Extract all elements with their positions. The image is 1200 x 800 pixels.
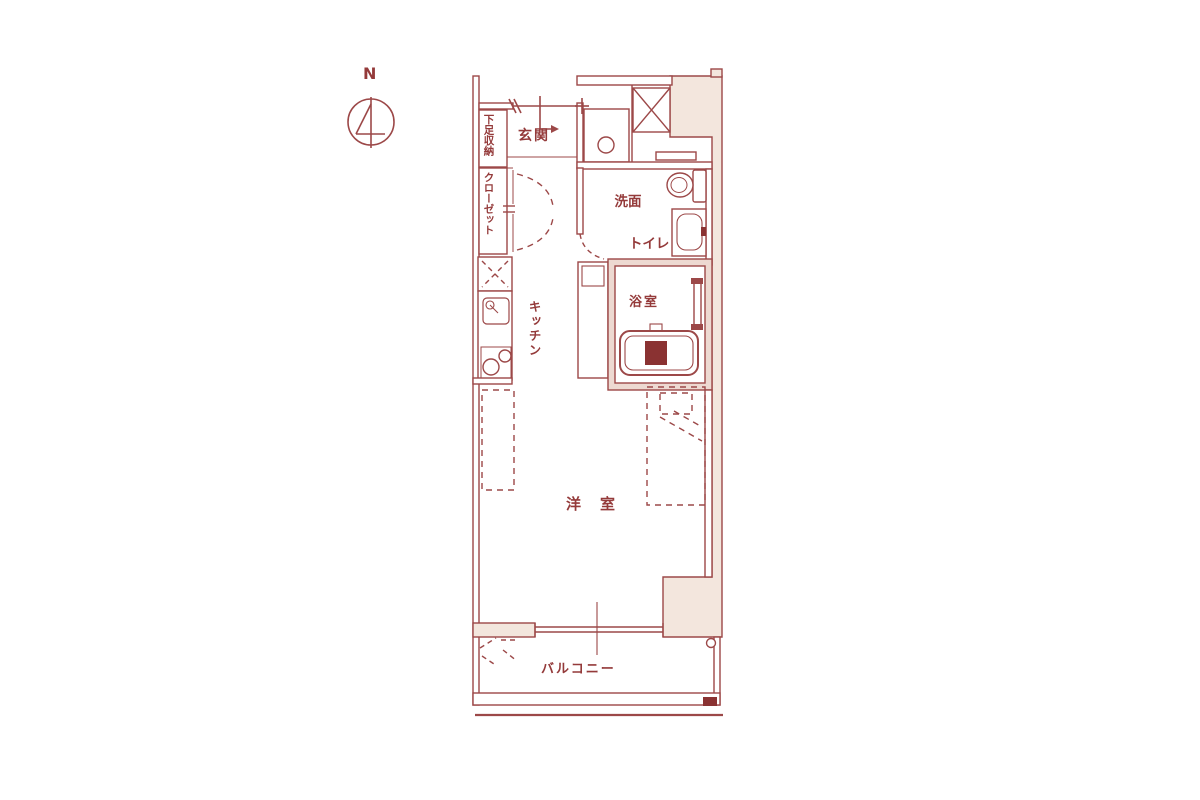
room-label-closet: クローゼット bbox=[483, 172, 494, 235]
bathtub bbox=[620, 324, 698, 375]
toilet bbox=[667, 170, 706, 202]
refrigerator-space bbox=[478, 257, 512, 291]
room-label-entrance: 玄関 bbox=[518, 125, 550, 145]
pipe-shaft-x-box bbox=[632, 85, 670, 162]
room-bottom-wall-window bbox=[473, 602, 663, 655]
washing-machine-pan bbox=[584, 109, 629, 162]
floor-plan-canvas: N 下足収納 玄関 クローゼット 洗面 トイレ キッチン 浴室 洋 室 バルコニ… bbox=[0, 0, 1200, 800]
lintel bbox=[656, 152, 696, 160]
kitchen-counter bbox=[478, 291, 512, 380]
floor-plan-drawing bbox=[0, 0, 1200, 800]
room-label-kitchen: キッチン bbox=[527, 300, 540, 358]
evacuation-hatch-dashed bbox=[480, 638, 517, 664]
north-label: N bbox=[363, 64, 376, 83]
north-arrow-icon bbox=[348, 97, 394, 148]
bath-door bbox=[694, 283, 701, 325]
vanity-basin bbox=[672, 209, 706, 256]
bed-dashed-outline bbox=[647, 387, 705, 505]
room-label-washroom: 洗面 トイレ bbox=[596, 192, 660, 255]
storage-cabinet-strip bbox=[578, 262, 608, 378]
room-right-wall bbox=[705, 390, 712, 577]
counter-dashed-outline bbox=[482, 390, 514, 490]
kitchen-end-wall bbox=[473, 378, 512, 384]
room-label-bathroom: 浴室 bbox=[629, 291, 659, 310]
room-label-balcony: バルコニー bbox=[541, 658, 616, 677]
balcony-drain bbox=[707, 639, 716, 648]
room-label-shoe-storage: 下足収納 bbox=[483, 114, 494, 156]
washroom-label-line2: トイレ bbox=[629, 236, 670, 252]
room-label-main-room: 洋 室 bbox=[566, 493, 617, 514]
washroom-label-line1: 洗面 bbox=[615, 194, 642, 210]
